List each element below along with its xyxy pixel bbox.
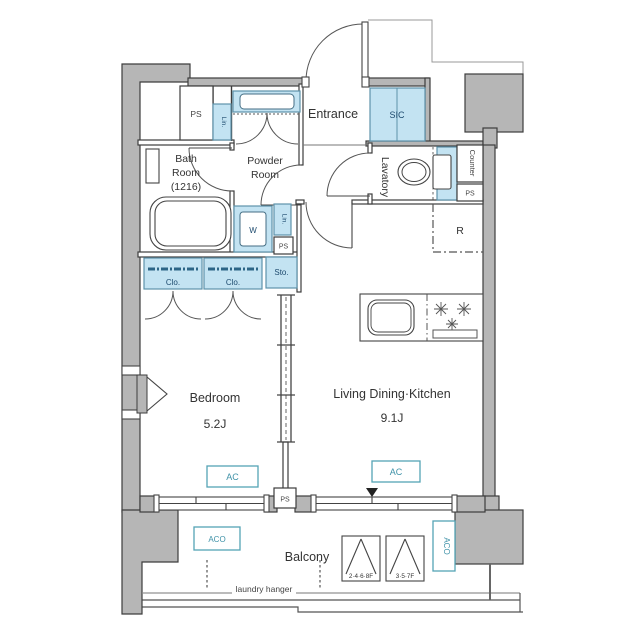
bath-label-2: Room (172, 167, 200, 179)
ldk-window (311, 495, 457, 512)
floor-plan-drawing: PS Lin. Entrance SIC Bath Room (1216) Po… (0, 0, 640, 640)
wall-top-left-segment (188, 78, 308, 86)
sic-label: SIC (389, 110, 405, 120)
balcony-railing (142, 593, 523, 612)
pipe-space-lav-label: PS (465, 191, 475, 198)
closet-1 (144, 258, 202, 319)
bath-label-1: Bath (175, 153, 197, 165)
aco-right-label: ACO (442, 537, 451, 554)
bedroom-label: Bedroom (190, 391, 241, 405)
ac-bedroom-label: AC (226, 472, 239, 482)
ldk-label: Living Dining·Kitchen (333, 387, 450, 401)
laundry-hanger-label: laundry hanger (236, 584, 293, 594)
closet-1-label: Clo. (166, 278, 180, 287)
column-bottom-right (455, 510, 523, 564)
wall-bottom-seg4 (453, 496, 485, 512)
wall-sic-right (425, 78, 430, 145)
lavatory-door (327, 153, 370, 196)
balcony-label: Balcony (285, 550, 330, 564)
aco-left-label: ACO (208, 535, 225, 544)
entrance-door-leaf (362, 22, 368, 79)
wall-right (483, 145, 495, 498)
toilet (398, 147, 457, 200)
storage-label: Sto. (274, 268, 288, 277)
pipe-space-mid-label: PS (279, 244, 289, 251)
ldk-door (306, 202, 352, 248)
column-top-right (465, 74, 523, 132)
washer-label: W (249, 226, 257, 235)
lavatory-label: Lavatory (379, 157, 391, 198)
closet-2-label: Clo. (226, 278, 240, 287)
vanity-basin (233, 91, 300, 144)
bedroom-size-label: 5.2J (204, 417, 227, 431)
pipe-space-bottom-label: PS (280, 497, 290, 504)
ac-ldk-label: AC (390, 467, 403, 477)
linen-top-label: Lin. (220, 117, 227, 128)
linen-label: Lin. (281, 214, 288, 225)
entrance-door (302, 22, 369, 87)
powder-label-1: Powder (247, 155, 283, 167)
kitchen-counter (360, 294, 483, 341)
floor-plan-page: PS Lin. Entrance SIC Bath Room (1216) Po… (0, 0, 640, 640)
exterior-outline (368, 20, 523, 74)
bath-shelf (146, 149, 159, 183)
wall-top-right-segment (366, 78, 429, 86)
column-bottom-left (122, 510, 178, 614)
entry-marker-icon (366, 488, 378, 497)
closet-2 (204, 258, 262, 319)
bath-label-3: (1216) (171, 181, 201, 193)
kitchen-sink (368, 300, 414, 335)
entrance-label: Entrance (308, 107, 358, 121)
sliding-partition (277, 295, 295, 442)
pipe-space-top-label: PS (190, 109, 202, 119)
toilet-tank (433, 155, 451, 189)
ldk-size-label: 9.1J (381, 411, 404, 425)
counter-label: Counter (468, 150, 477, 177)
bedroom-window (154, 495, 269, 512)
hatch-odd-label: 3·5·7F (396, 573, 415, 580)
hatch-even-label: 2·4·6·8F (349, 573, 373, 580)
fridge-label: R (456, 225, 464, 237)
